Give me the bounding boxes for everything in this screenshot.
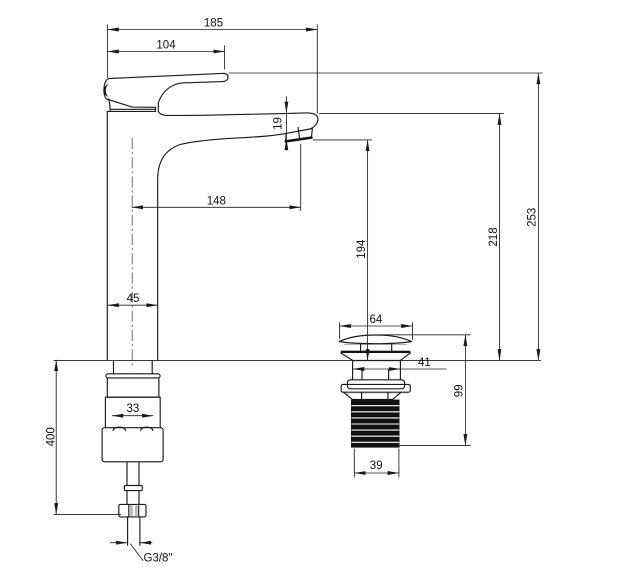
svg-text:33: 33 (127, 403, 140, 415)
svg-text:400: 400 (45, 427, 57, 446)
svg-text:64: 64 (370, 314, 383, 326)
svg-text:G3/8": G3/8" (144, 553, 173, 565)
svg-text:194: 194 (356, 239, 368, 259)
svg-text:39: 39 (370, 460, 383, 472)
svg-text:45: 45 (127, 293, 140, 305)
svg-text:148: 148 (207, 195, 226, 207)
svg-text:104: 104 (156, 39, 176, 51)
svg-text:253: 253 (527, 208, 539, 227)
svg-text:41: 41 (418, 357, 431, 369)
svg-text:99: 99 (454, 384, 466, 397)
svg-text:185: 185 (204, 17, 223, 29)
svg-text:218: 218 (488, 227, 500, 246)
svg-text:19: 19 (272, 117, 284, 130)
